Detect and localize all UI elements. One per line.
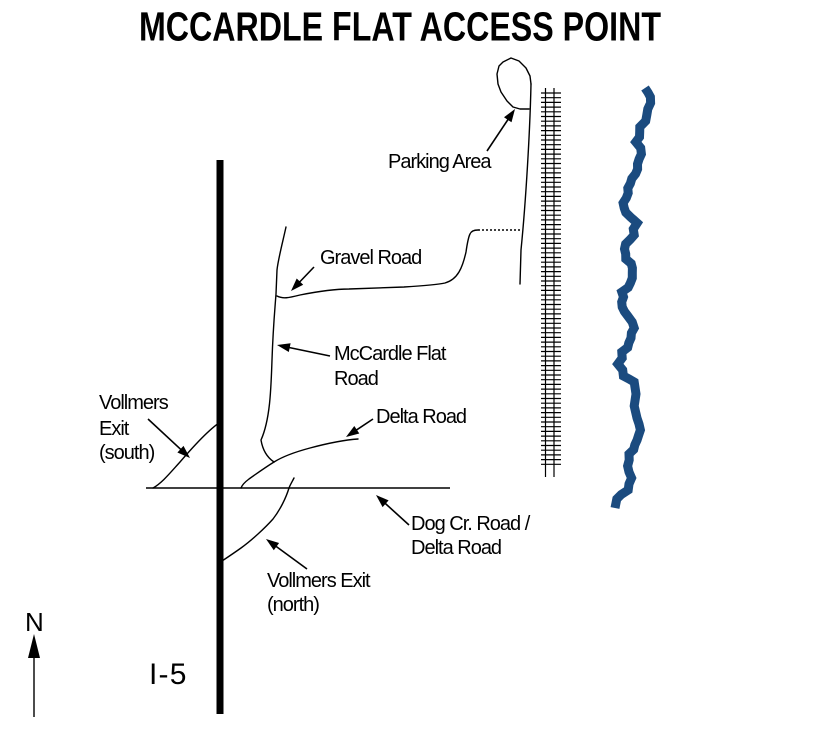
svg-text:Parking Area: Parking Area (388, 151, 492, 173)
svg-text:(north): (north) (267, 594, 319, 616)
svg-text:(south): (south) (99, 442, 155, 464)
svg-text:Road: Road (334, 368, 378, 390)
svg-text:McCardle Flat: McCardle Flat (334, 343, 447, 365)
svg-text:Delta Road: Delta Road (411, 537, 501, 559)
svg-text:MCCARDLE FLAT ACCESS POINT: MCCARDLE FLAT ACCESS POINT (139, 4, 661, 50)
svg-text:Gravel Road: Gravel Road (320, 247, 421, 269)
svg-text:Delta Road: Delta Road (376, 406, 466, 428)
svg-text:Vollmers Exit: Vollmers Exit (267, 570, 371, 592)
svg-text:Dog Cr. Road /: Dog Cr. Road / (411, 513, 531, 535)
svg-text:Exit: Exit (99, 418, 130, 440)
svg-text:Vollmers: Vollmers (99, 392, 169, 414)
svg-text:N: N (25, 607, 44, 637)
svg-text:I-5: I-5 (149, 658, 188, 691)
